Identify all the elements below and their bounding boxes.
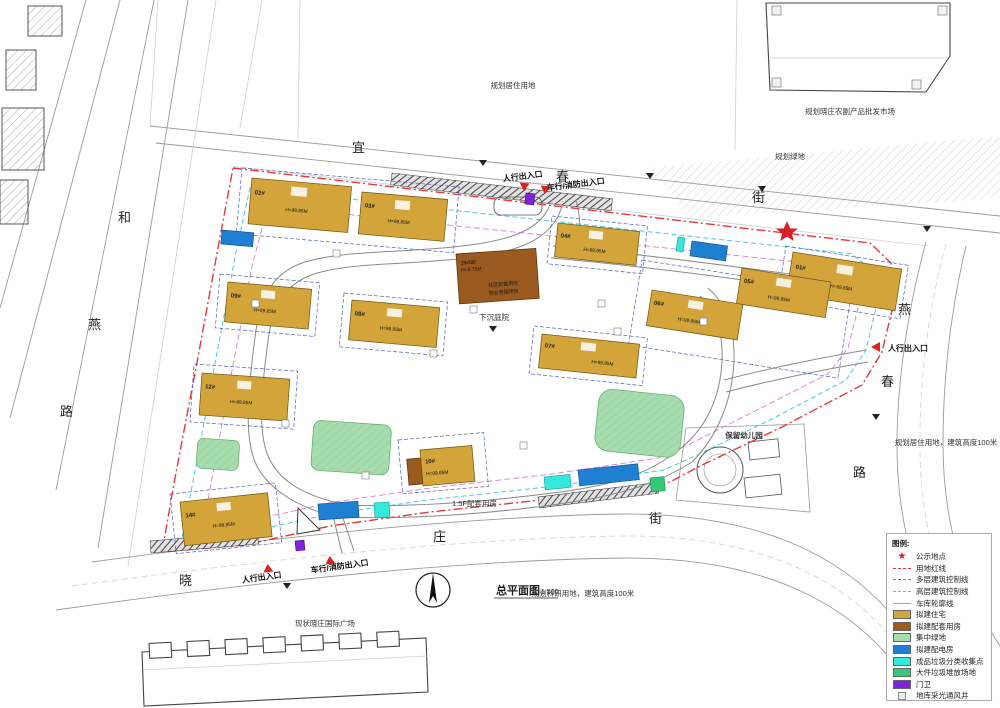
building-06: 06# H=99.85M — [646, 290, 742, 340]
bulky-waste-swatch-icon — [893, 668, 911, 677]
svg-text:08#: 08# — [355, 311, 366, 318]
svg-text:规划科研用地，建筑高度100米: 规划科研用地，建筑高度100米 — [532, 588, 635, 598]
legend-item: ★ 公示地点 — [892, 551, 986, 563]
svg-text:燕: 燕 — [898, 302, 911, 317]
svg-text:12#: 12# — [205, 384, 216, 391]
star-icon: ★ — [898, 552, 907, 562]
green-strip-area — [650, 136, 1000, 218]
red-dash-line-icon — [893, 568, 911, 569]
svg-text:和: 和 — [118, 210, 131, 225]
svg-text:街: 街 — [649, 511, 662, 526]
highrise-dash-line-icon — [893, 591, 911, 592]
svg-text:宜: 宜 — [352, 140, 365, 155]
recycle-swatch-icon — [893, 657, 911, 666]
svg-text:1.5F配套用房: 1.5F配套用房 — [452, 498, 497, 508]
power-swatch-icon — [893, 645, 911, 654]
legend-item: 用地红线 — [892, 563, 986, 575]
site-plan-drawing: 02# H=99.85M 03# H=99.85M 04# H=99.85M 0… — [0, 0, 1000, 708]
building-02: 02# H=99.85M — [248, 178, 352, 233]
legend-item: 集中绿地 — [892, 632, 986, 644]
garage-line-icon — [893, 603, 911, 604]
vent-square-icon — [898, 692, 906, 700]
svg-text:03#: 03# — [365, 203, 376, 210]
svg-text:保留幼儿园: 保留幼儿园 — [724, 430, 763, 440]
legend-item: 多层建筑控制线 — [892, 574, 986, 586]
svg-text:路: 路 — [853, 465, 866, 480]
svg-text:04#: 04# — [560, 233, 571, 240]
legend-item: 拟建配套用房 — [892, 621, 986, 633]
notice-star-icon — [776, 221, 798, 241]
building-10: 10# H=99.85M — [406, 445, 475, 487]
svg-text:现状晓庄国际广场: 现状晓庄国际广场 — [295, 618, 355, 628]
site-plan-canvas: 02# H=99.85M 03# H=99.85M 04# H=99.85M 0… — [0, 0, 1000, 708]
legend-item: 成品垃圾分类收集点 — [892, 655, 986, 667]
gate-swatch-icon — [893, 680, 911, 689]
svg-text:晓: 晓 — [179, 573, 192, 588]
market-building — [766, 3, 950, 92]
building-07: 07# H=99.85M — [538, 334, 639, 378]
gate-house — [525, 193, 535, 205]
plaza-building — [142, 631, 428, 706]
svg-text:人行出入口: 人行出入口 — [888, 343, 928, 353]
support-building: 15#/2F H=9.75M 社区配套用房 物业管理用房 — [456, 248, 539, 303]
svg-text:人行出入口: 人行出入口 — [502, 169, 543, 184]
legend-item: 车库轮廓线 — [892, 597, 986, 609]
multi-dash-line-icon — [893, 579, 911, 580]
residential-swatch-icon — [893, 610, 911, 619]
building-08: 08# H=99.85M — [349, 300, 440, 348]
svg-text:庄: 庄 — [433, 529, 446, 544]
svg-text:14#: 14# — [185, 512, 196, 519]
building-12: 12# H=99.85M — [199, 373, 290, 421]
svg-text:规划晓庄农副产品批发市场: 规划晓庄农副产品批发市场 — [805, 106, 895, 116]
svg-text:规划居住用地，建筑高度100米: 规划居住用地，建筑高度100米 — [895, 437, 998, 447]
svg-text:10#: 10# — [425, 459, 436, 466]
svg-text:09#: 09# — [231, 293, 242, 300]
building-09: 09# H=99.85M — [225, 282, 312, 329]
green-swatch-icon — [893, 633, 911, 642]
building-14: 14# H=99.85M — [180, 493, 272, 546]
svg-text:02#: 02# — [254, 190, 265, 197]
svg-text:燕: 燕 — [88, 317, 101, 332]
support-swatch-icon — [893, 622, 911, 631]
legend-title: 图例: — [892, 538, 986, 549]
svg-text:15#/2F: 15#/2F — [460, 260, 476, 267]
garage-ramp — [297, 508, 320, 534]
legend-item: 拟建配电房 — [892, 644, 986, 656]
existing-buildings-west — [0, 6, 62, 224]
svg-text:规划居住用地: 规划居住用地 — [491, 80, 536, 90]
gate-house — [295, 540, 305, 551]
legend-item: 地库采光通风井 — [892, 690, 986, 702]
legend-item: 拟建住宅 — [892, 609, 986, 621]
svg-text:规划绿地: 规划绿地 — [775, 151, 805, 161]
svg-text:07#: 07# — [544, 343, 555, 350]
legend-box: 图例: ★ 公示地点 用地红线 多层建筑控制线 高层建筑控制线 车库轮廓线 拟建… — [886, 533, 992, 701]
north-compass-icon — [416, 573, 450, 607]
facility-rects — [221, 193, 728, 551]
svg-text:街: 街 — [752, 190, 765, 205]
legend-item: 高层建筑控制线 — [892, 586, 986, 598]
svg-text:车行/消防出入口: 车行/消防出入口 — [310, 557, 369, 575]
svg-text:路: 路 — [60, 404, 73, 419]
residential-buildings: 02# H=99.85M 03# H=99.85M 04# H=99.85M 0… — [180, 178, 902, 546]
svg-text:下沉庭院: 下沉庭院 — [479, 312, 509, 322]
legend-item: 门卫 — [892, 679, 986, 691]
legend-item: 大件垃圾堆放场地 — [892, 667, 986, 679]
building-03: 03# H=99.85M — [358, 192, 447, 241]
svg-text:春: 春 — [881, 374, 894, 389]
